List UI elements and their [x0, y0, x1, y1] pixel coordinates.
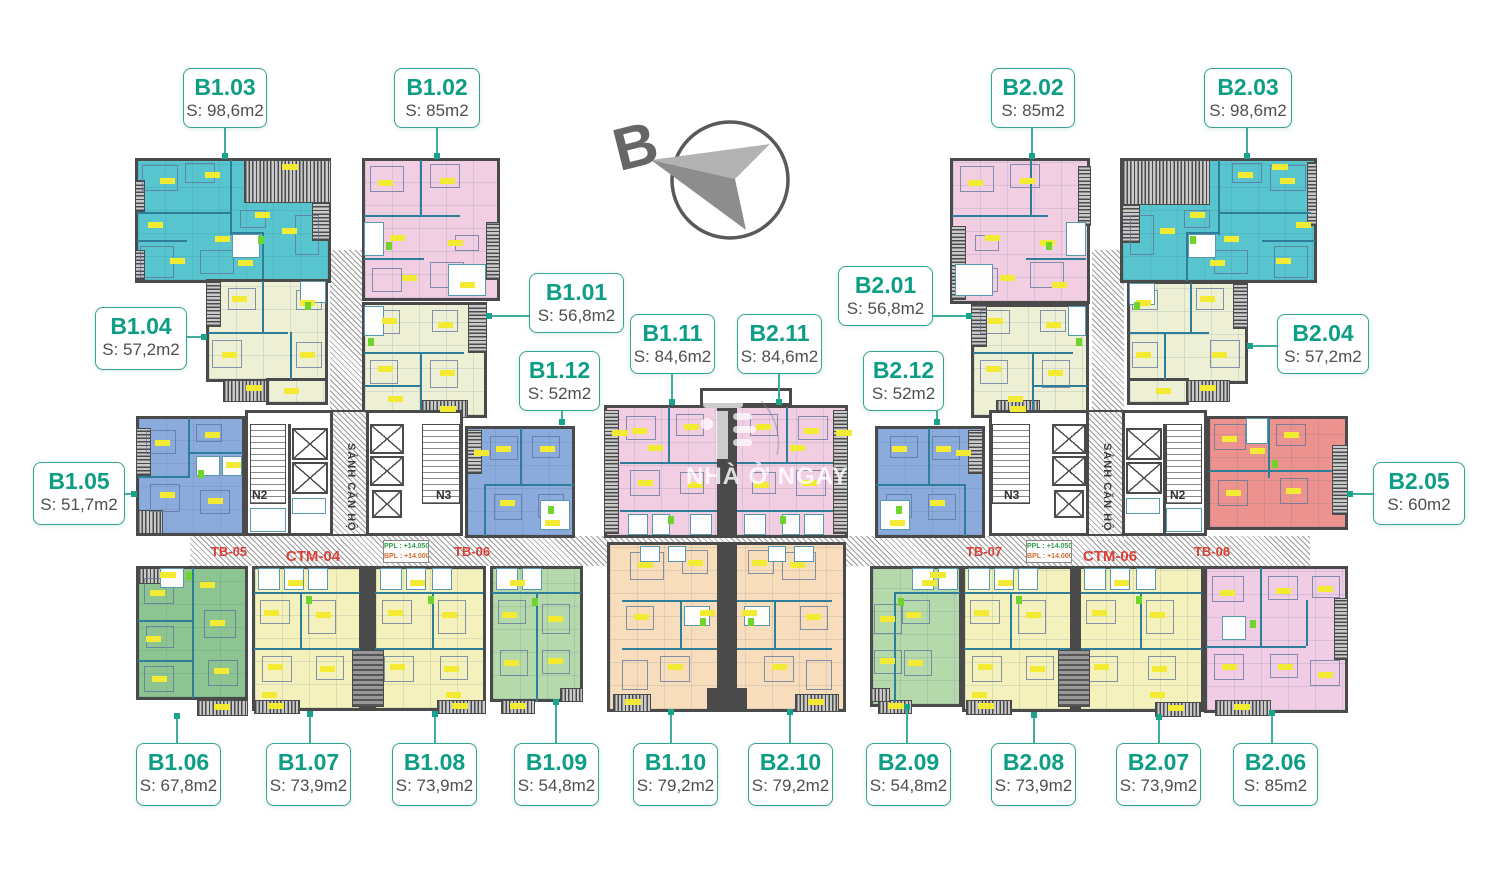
svg-text:B: B	[606, 108, 664, 183]
